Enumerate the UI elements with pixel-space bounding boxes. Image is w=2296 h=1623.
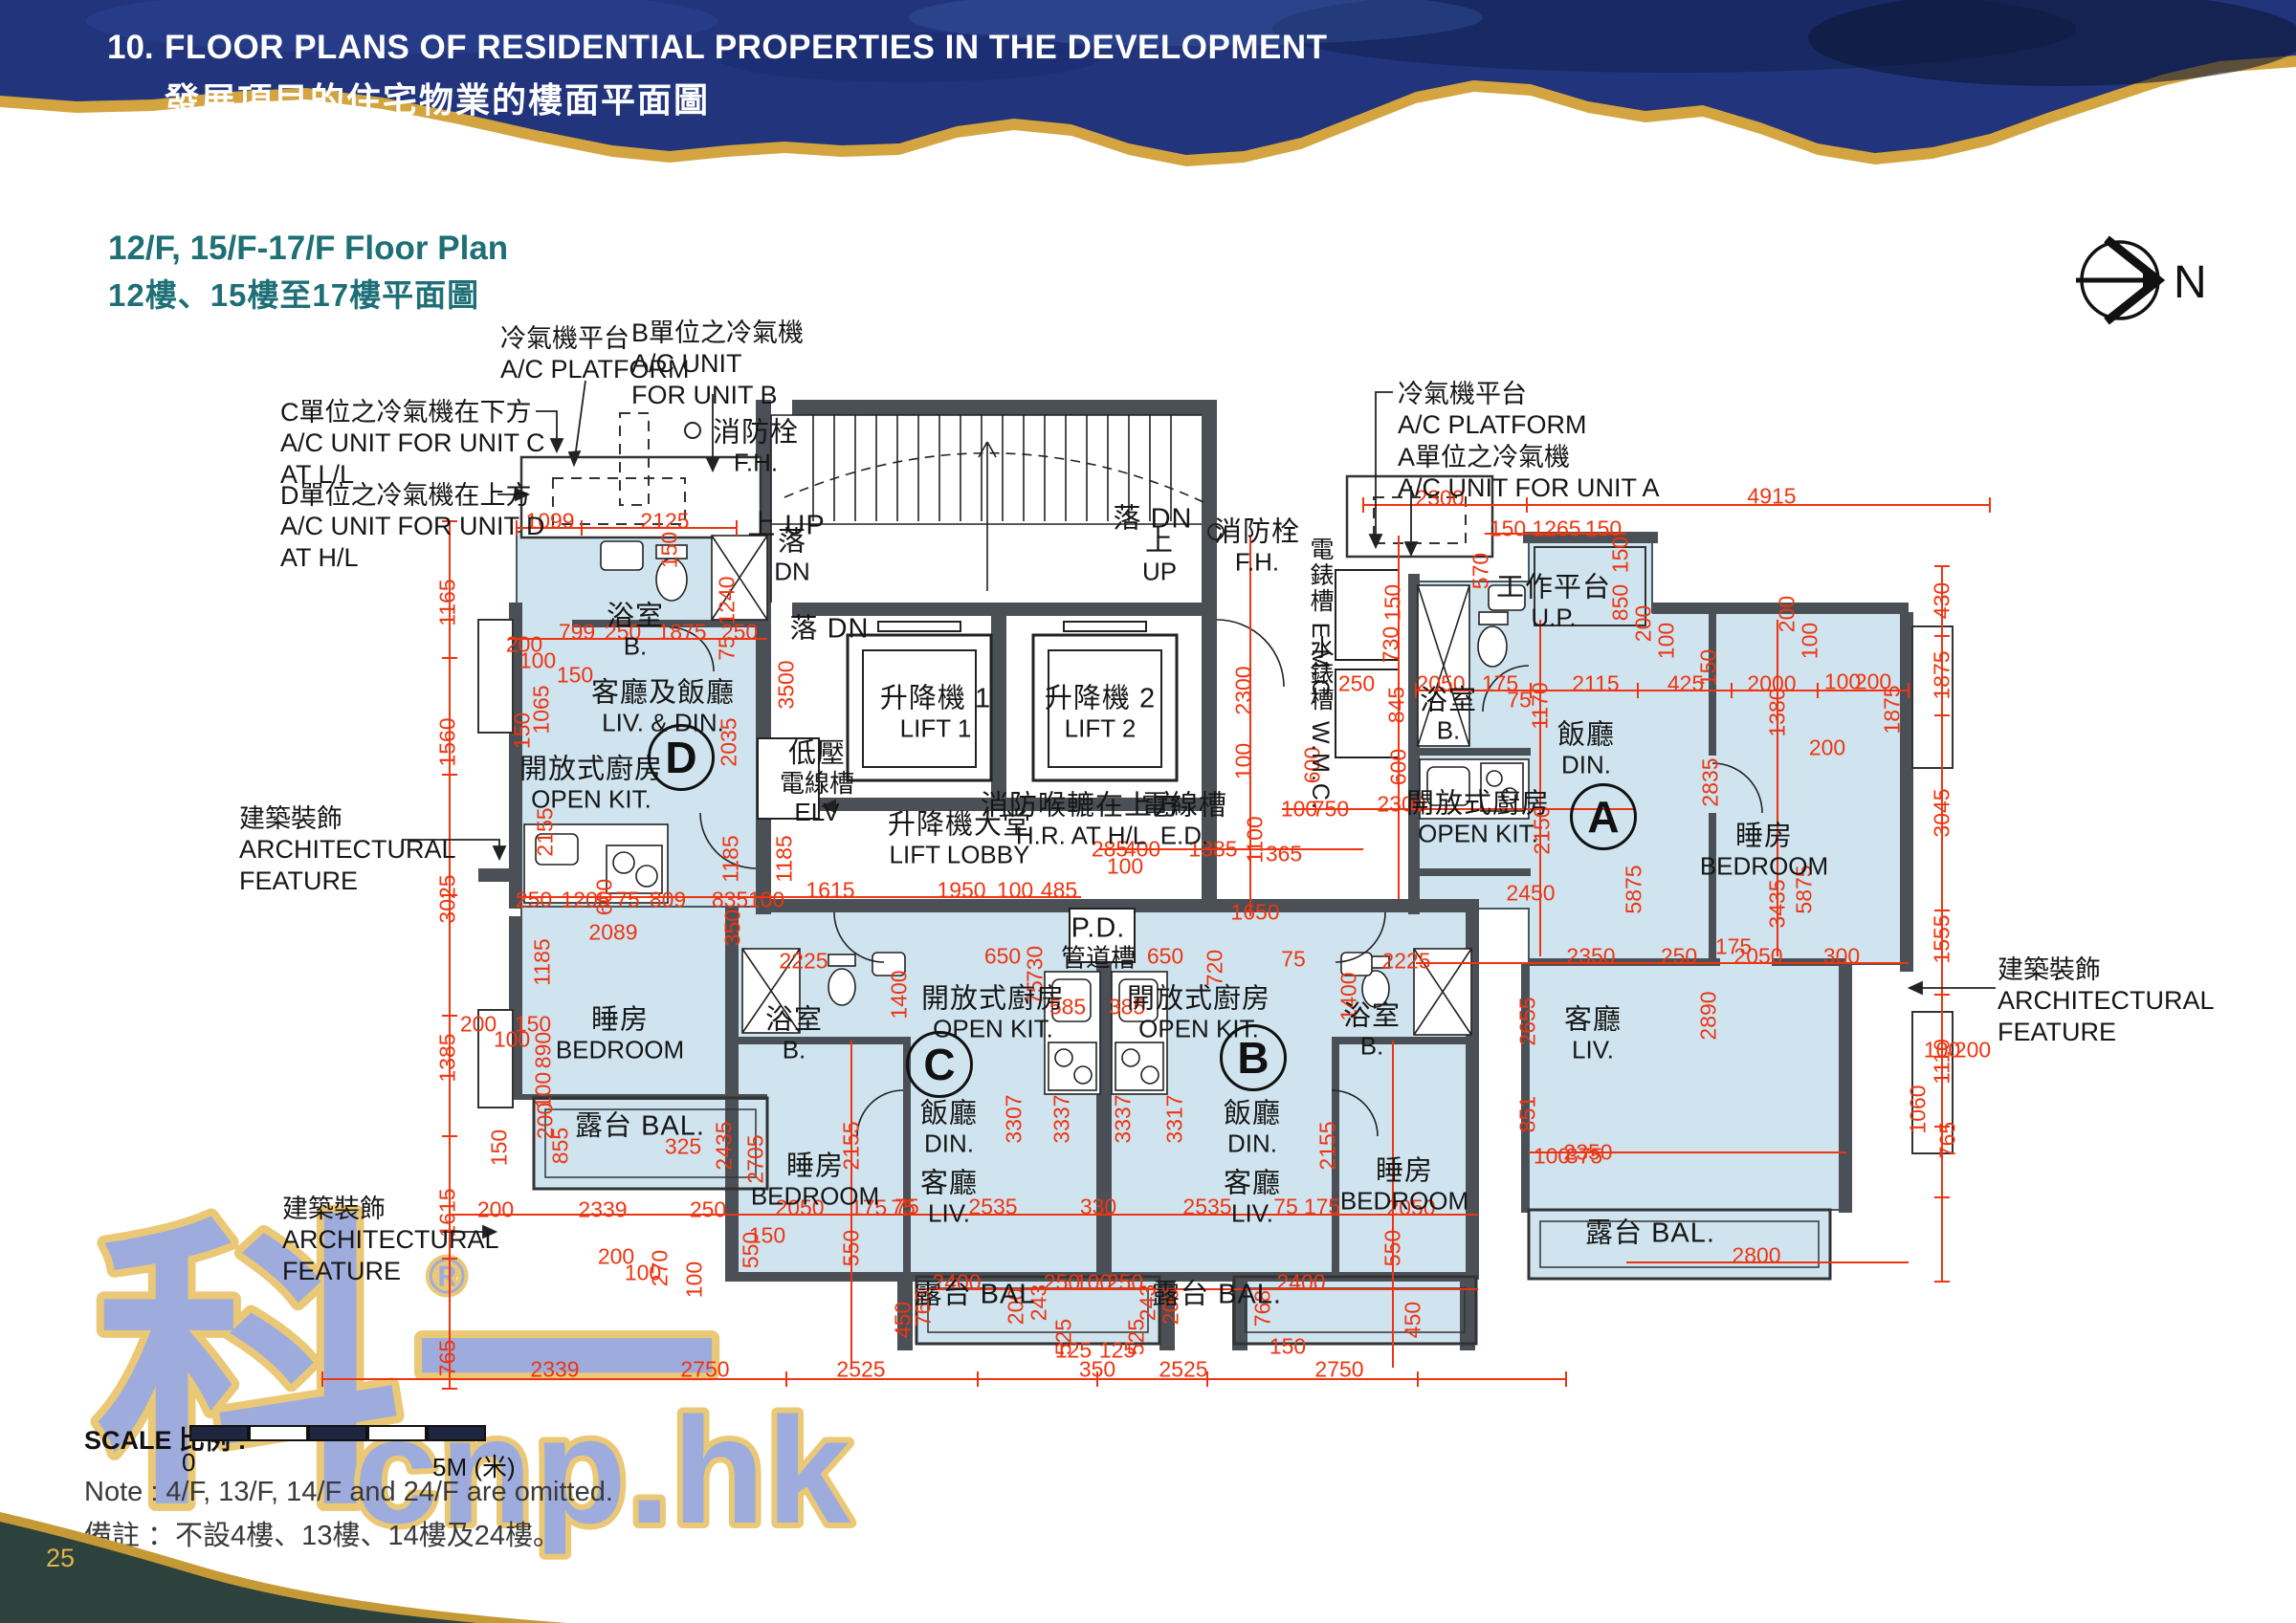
scale-bar-segment bbox=[427, 1425, 486, 1441]
fire-hydrant-left bbox=[685, 423, 700, 438]
scale-bar-segment bbox=[308, 1425, 367, 1441]
north-arrow-icon bbox=[2076, 239, 2158, 321]
staircase bbox=[771, 415, 1203, 603]
corner-torn-paper bbox=[0, 1470, 593, 1623]
north-label: N bbox=[2174, 256, 2207, 309]
page-title-en: FLOOR PLANS OF RESIDENTIAL PROPERTIES IN… bbox=[165, 29, 1328, 67]
page-title-zh: 發展項目的住宅物業的樓面平面圖 bbox=[165, 73, 710, 122]
lift-1 bbox=[848, 622, 991, 780]
lift-2 bbox=[1033, 622, 1177, 780]
brochure-page: 科一 ® cnp.hk bbox=[0, 0, 2296, 1623]
scale-bar-segment bbox=[367, 1425, 427, 1441]
section-number: 10. bbox=[107, 29, 154, 67]
scale-bar-segment bbox=[189, 1425, 249, 1441]
floor-plan-title-en: 12/F, 15/F-17/F Floor Plan bbox=[108, 230, 508, 268]
scale-bar-segment bbox=[249, 1425, 308, 1441]
page-number: 25 bbox=[46, 1544, 75, 1573]
floor-plan-title-zh: 12樓、15樓至17樓平面圖 bbox=[108, 270, 479, 316]
